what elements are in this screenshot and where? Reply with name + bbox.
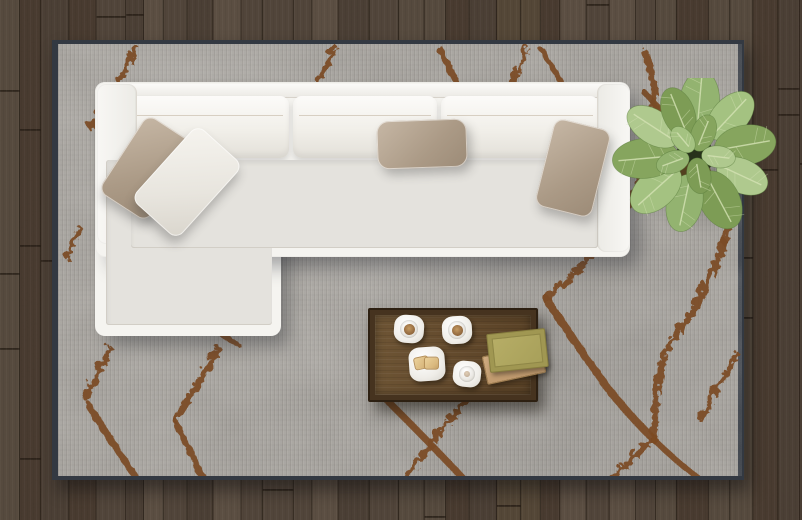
- coffee-cup-2: [441, 315, 472, 345]
- biscuit-2: [424, 357, 439, 370]
- coffee-cup-1: [393, 314, 425, 344]
- coffee-2: [451, 324, 463, 336]
- green-book: [486, 328, 549, 373]
- coffee-1: [403, 323, 415, 335]
- biscuit-plate: [408, 346, 446, 382]
- plant-leaves: [612, 78, 778, 238]
- potted-plant: [612, 78, 778, 238]
- coffee-table: [368, 308, 538, 402]
- living-room-top-view: [0, 0, 802, 520]
- small-white-cup: [452, 360, 483, 389]
- pillow-taupe-center: [376, 118, 468, 169]
